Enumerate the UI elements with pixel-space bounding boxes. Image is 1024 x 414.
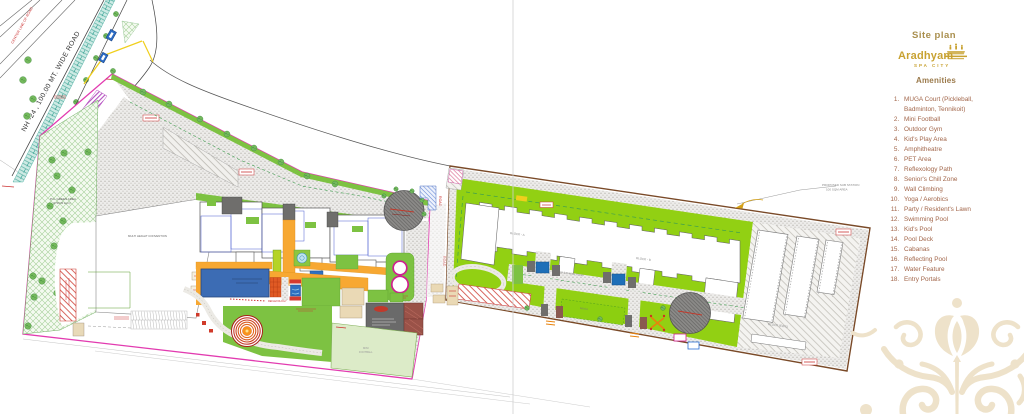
svg-text:REFLEXOLOGY: REFLEXOLOGY <box>268 300 287 303</box>
svg-text:PROPOSED SUB STATION: PROPOSED SUB STATION <box>822 183 859 187</box>
svg-text:(1700.00 sq.m): (1700.00 sq.m) <box>53 201 71 205</box>
svg-text:100 SQM AREA: 100 SQM AREA <box>826 188 848 192</box>
svg-text:MINI: MINI <box>363 346 369 350</box>
svg-text:P.G. GREEN AREA: P.G. GREEN AREA <box>50 197 76 201</box>
svg-text:MULTI HEIGHT CONVENTION: MULTI HEIGHT CONVENTION <box>128 234 167 238</box>
svg-text:FOOTBALL: FOOTBALL <box>359 350 373 354</box>
